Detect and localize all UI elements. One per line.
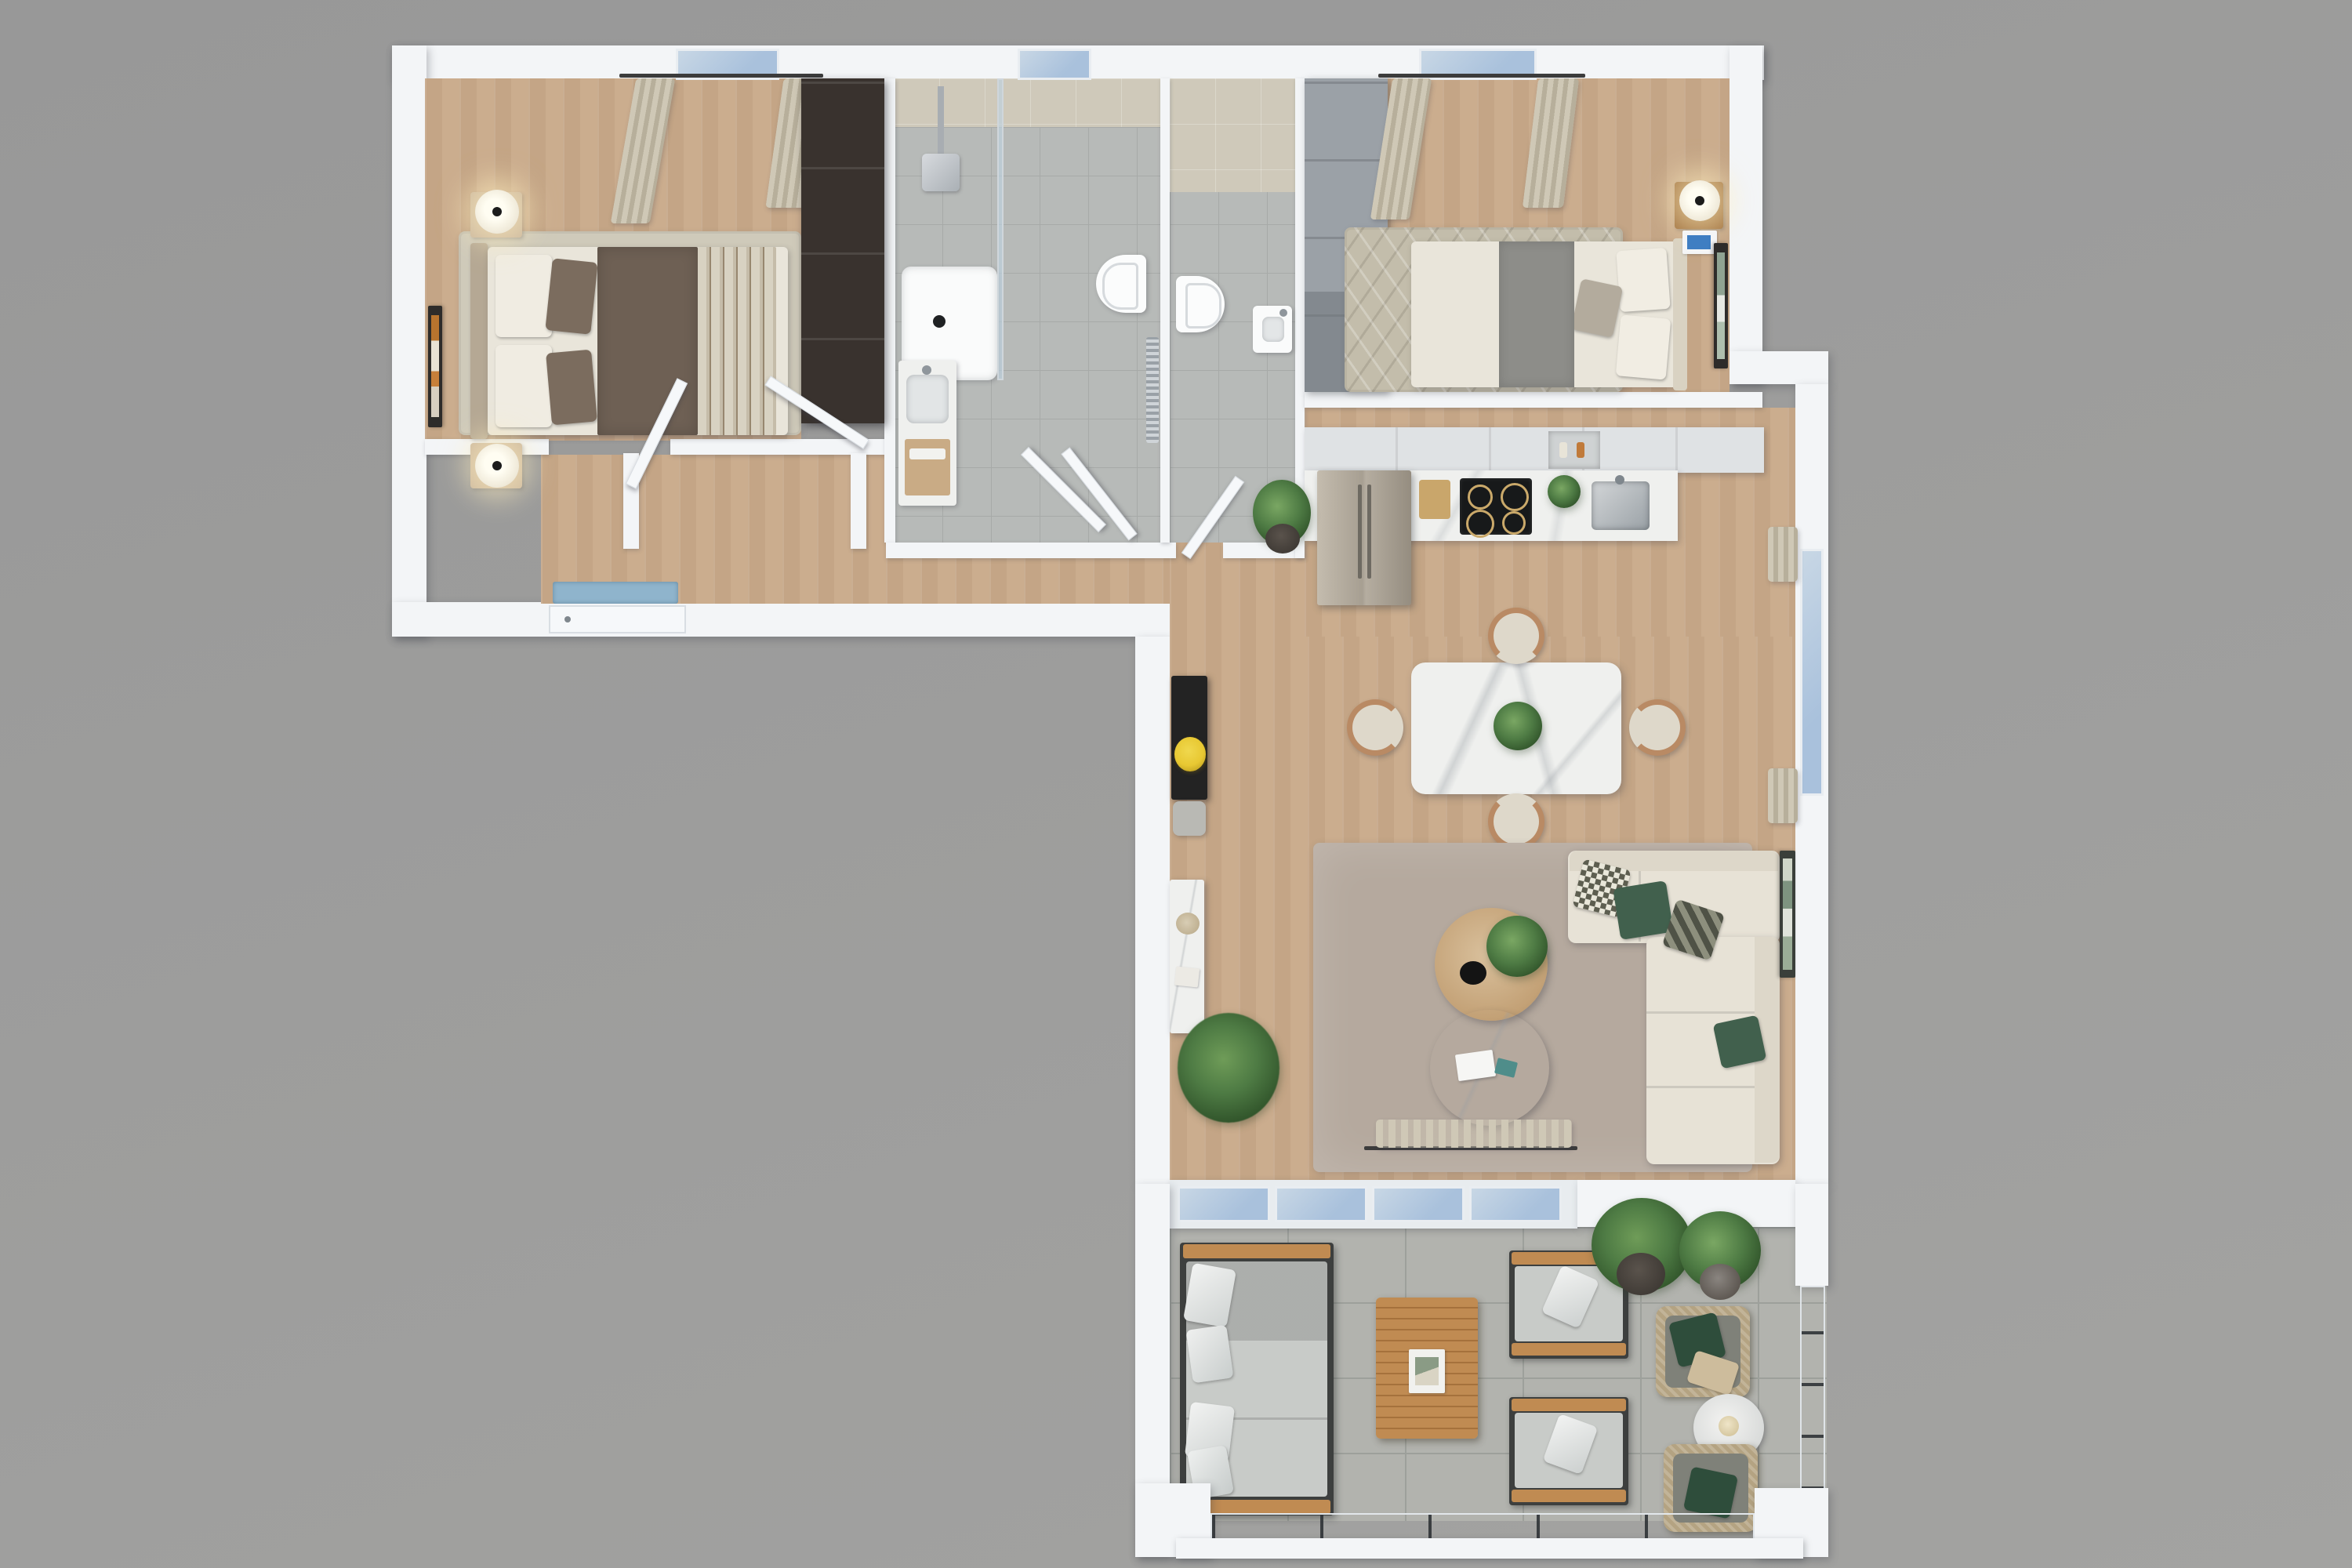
kitchen-shelf-niche [1548,431,1600,469]
vanity-faucet [922,365,931,375]
bathroom-south-wall [886,543,1176,558]
bed1-headboard [470,243,488,439]
bathroom-wall-tiles [894,78,1160,127]
cutting-board [1419,480,1450,519]
bed2-gray-runner [1499,241,1574,387]
bed1-pillow-white-top [495,255,552,337]
wc-wall-tiles [1170,78,1295,192]
rattan-s-green-pillow [1683,1466,1738,1519]
sliding-panel-3 [1372,1186,1465,1222]
bed1-brown-blanket [597,247,698,435]
dining-chair-east [1629,699,1686,756]
entry-door-handle [564,616,571,622]
magazine-cover [1415,1357,1439,1385]
terrace-door-sheer-curtain [1376,1120,1572,1148]
dining-curtain-north [1768,527,1798,582]
bed2-blue-book [1687,235,1711,249]
bathroom-window [1018,49,1091,80]
tv-cabinet [1170,880,1204,1033]
bedroom2-wall-art [1714,243,1728,368]
outer-wall-south-hallway [392,602,1170,637]
bed1-pillow-white-bottom [495,345,552,427]
terrace-glass-balustrade [1210,1513,1755,1540]
floorplan-stage [0,0,2352,1568]
bedroom1-wall-art [428,306,442,427]
console-bench [1173,801,1206,836]
terrace-shrub-pot [1700,1264,1740,1300]
wc-faucet [1279,309,1287,317]
vanity-towel [909,448,946,459]
closet-partition-east [851,453,866,549]
kitchen-sink [1592,481,1650,530]
terrace-palm-pot [1617,1253,1665,1295]
shower-drain [933,315,946,328]
dining-centerpiece-plant [1494,702,1542,750]
burner-2 [1501,483,1529,511]
bathroom-vanity [898,361,956,506]
bed2-lamp [1679,180,1720,221]
outer-wall-east-bedroom2 [1730,45,1762,384]
rain-shower-head [922,154,960,191]
console-yellow-flowers [1174,737,1206,771]
bed1-pillow-brown-bottom [546,350,597,426]
living-palm-plant [1178,1013,1279,1123]
living-wall-art [1780,851,1795,978]
bedroom2-kitchen-wall [1305,392,1762,408]
sofa-pillow-green-1 [1613,880,1673,940]
shower-glass-screen [997,78,1004,380]
toilet-seat-ring [1102,263,1138,310]
entry-door [549,605,686,633]
amber-bottle [1577,442,1584,458]
coffee-table-plant [1486,916,1548,977]
vanity-wood-shelf [905,439,950,495]
outer-wall-west-wing [1135,637,1170,1184]
bathroom-wc-wall [1160,78,1170,543]
terrace-glass-east [1800,1286,1825,1491]
fridge-handle-right [1367,485,1371,579]
wc-toilet-seat-ring [1185,283,1221,328]
fridge-freezer [1317,470,1411,605]
fridge-handle-left [1358,485,1362,579]
wc-basin-bowl [1262,317,1284,342]
outer-wall-step [1730,351,1828,384]
terrace-table-magazine [1409,1349,1445,1393]
terrace-east-wall-upper [1795,1184,1828,1286]
shower-column [938,86,944,157]
bedroom1-curtain-rod [619,74,823,78]
dining-chair-south [1488,793,1544,850]
outdoor-sofa [1180,1243,1334,1515]
hat-on-cabinet [1176,913,1200,935]
lounge-s-teak-top [1512,1399,1626,1411]
bed1-pillow-brown-top [545,258,597,335]
bedroom1-dark-wardrobe [801,78,884,423]
kitchen-tall-cabinets [1305,427,1764,473]
coffee-table-bowl [1460,961,1486,985]
bed2-pillow-top [1616,248,1670,312]
bed1-striped-throw [698,247,776,435]
sliding-panel-4 [1469,1186,1562,1222]
sliding-door-track [1170,1180,1577,1229]
wc-washbasin [1253,306,1292,353]
art-canvas-3 [1783,858,1792,970]
burner-1 [1468,485,1493,510]
dining-chair-west [1347,699,1403,756]
sofa-pillow-green-2 [1713,1015,1767,1069]
induction-cooktop [1460,478,1532,535]
terrace-outer-sill [1176,1538,1803,1559]
dining-curtain-south [1768,768,1798,823]
towel-radiator [1146,337,1159,443]
lounge-chair-south [1509,1397,1628,1505]
sliding-panel-1 [1178,1186,1270,1222]
bed1-lamp-south [475,444,519,488]
vanity-basin [906,375,949,423]
art-canvas-2 [1717,252,1725,359]
sliding-panel-2 [1275,1186,1367,1222]
kitchen-entry-pot [1265,524,1300,554]
burner-3 [1466,510,1494,538]
bedroom1-bathroom-wall [884,78,895,543]
terrace-coffee-table [1376,1298,1478,1439]
outdoor-sofa-teak-top [1183,1244,1330,1258]
art-canvas [431,315,439,417]
dining-east-window [1800,549,1824,796]
outer-wall-west [392,45,426,637]
kitchen-herb-plant [1548,475,1581,508]
entry-doormat [553,582,678,604]
glass-bottle [1559,442,1567,458]
rattan-chair-north [1656,1306,1750,1397]
bed2-books [1682,230,1717,254]
cabinet-magazines [1174,966,1200,987]
marble-table-books [1455,1050,1496,1081]
dining-chair-north [1488,608,1544,664]
bed2-pillow-bottom [1616,314,1671,379]
lounge-n-teak-bottom [1512,1343,1626,1356]
bedroom2-curtain-rod [1378,74,1585,78]
bed1-lamp-north [475,190,519,234]
bistro-lantern [1719,1416,1739,1436]
outdoor-pillow-2 [1186,1325,1234,1384]
burner-4 [1502,511,1526,535]
sink-faucet [1615,475,1624,485]
lounge-s-teak-bottom [1512,1490,1626,1502]
bed2-headboard [1673,238,1687,390]
